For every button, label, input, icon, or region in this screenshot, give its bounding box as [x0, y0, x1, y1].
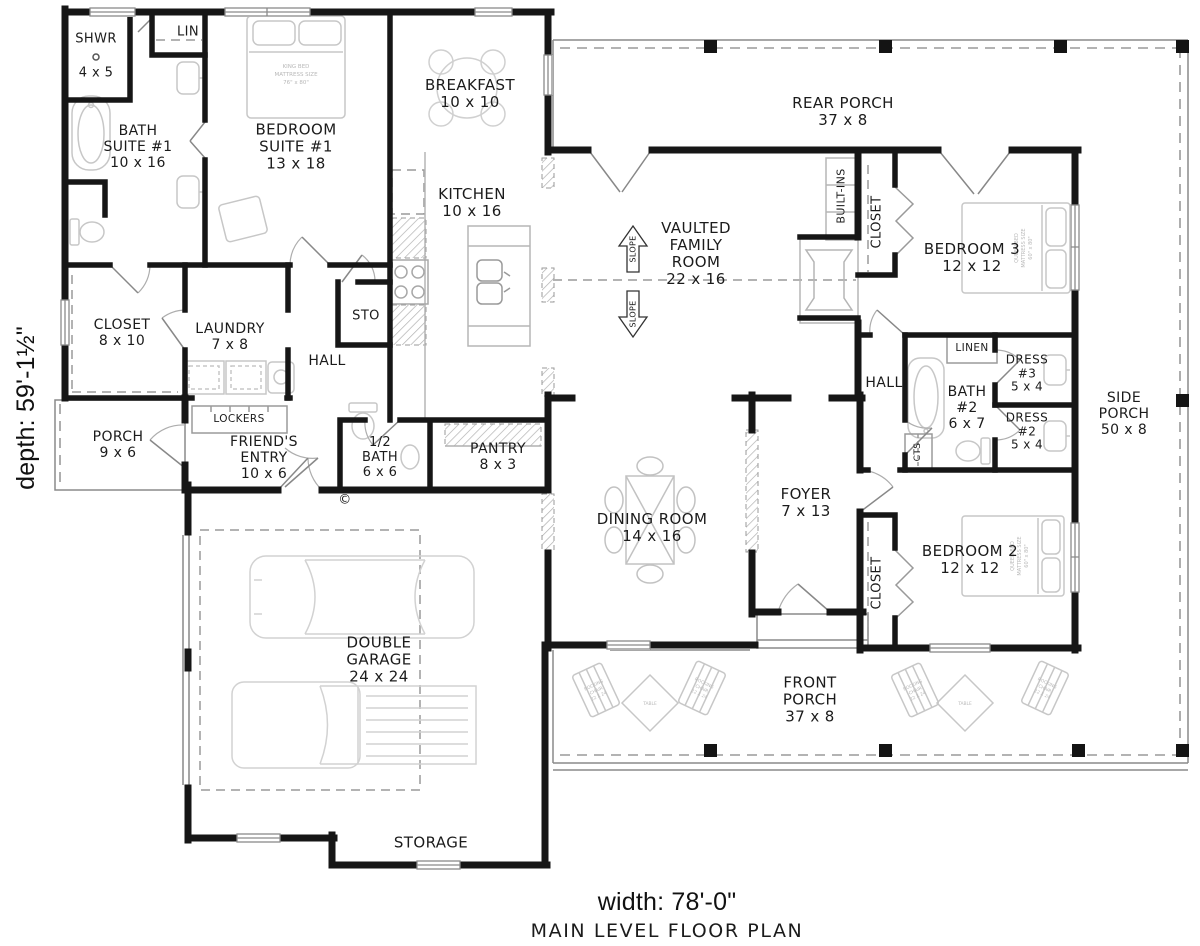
floor-plan-sheet: KING BED MATTRESS SIZE 76" x 80" QUEEN B…: [0, 0, 1200, 946]
room-label-side-porch: SIDEPORCH50 x 8: [1099, 391, 1150, 439]
width-dimension: width: 78'-0": [598, 888, 737, 917]
room-label-dress-2: DRESS#25 x 4: [1006, 411, 1048, 452]
vanity-sinks-icon: [177, 62, 203, 208]
room-label-kitchen: KITCHEN10 x 16: [438, 186, 506, 220]
exterior-walls: [65, 9, 1078, 865]
truck-icon: [232, 682, 476, 768]
room-label-lockers: LOCKERS: [213, 414, 264, 426]
room-label-closet-8x10: CLOSET8 x 10: [94, 318, 151, 350]
floor-plan-drawing: KING BED MATTRESS SIZE 76" x 80" QUEEN B…: [0, 0, 1200, 946]
room-dims-shwr: 4 x 5: [79, 67, 114, 82]
room-label-front-porch: FRONTPORCH37 x 8: [783, 674, 837, 725]
room-label-bath-suite-1: BATHSUITE #110 x 16: [104, 124, 173, 172]
room-label-family-room: VAULTEDFAMILYROOM22 x 16: [661, 220, 731, 288]
room-label-shwr: SHWR: [75, 33, 117, 48]
room-label-linen: LINEN: [955, 343, 988, 355]
room-label-laundry: LAUNDRY7 x 8: [195, 322, 264, 354]
room-label-dining-room: DINING ROOM14 x 16: [597, 511, 708, 545]
room-label-foyer: FOYER7 x 13: [781, 486, 832, 520]
svg-text:60" x 80": 60" x 80": [1028, 236, 1034, 259]
room-label-sto: STO: [352, 310, 380, 325]
slope-label: SLOPE: [628, 236, 637, 263]
room-label-friends-entry: FRIEND'SENTRY10 x 6: [230, 435, 298, 483]
bedroom-chair-icon: [218, 195, 268, 242]
room-label-bedroom-suite-1: BEDROOMSUITE #113 x 18: [255, 121, 336, 172]
room-label-bedroom-3: BEDROOM 312 x 12: [924, 241, 1020, 275]
room-label-hall-right: HALL: [865, 376, 902, 392]
room-label-breakfast: BREAKFAST10 x 10: [425, 77, 515, 111]
room-label-lin: LIN: [177, 26, 199, 41]
svg-text:MATTRESS SIZE: MATTRESS SIZE: [274, 72, 318, 78]
room-label-built-ins: BUILT-INS: [836, 168, 849, 223]
depth-dimension: depth: 59'-1½": [12, 326, 41, 490]
room-label-porch-9x6: PORCH9 x 6: [93, 430, 144, 462]
svg-text:KING BED: KING BED: [283, 64, 310, 70]
car-icon: [250, 556, 474, 638]
room-label-cts: CTS: [913, 443, 923, 462]
room-label-rear-porch: REAR PORCH37 x 8: [792, 95, 894, 129]
closet-bifold-icon: [895, 550, 913, 618]
page-title: MAIN LEVEL FLOOR PLAN: [531, 921, 804, 943]
stove-icon: [391, 260, 428, 304]
furniture: [70, 16, 1070, 768]
room-label-bedroom-2: BEDROOM 212 x 12: [922, 543, 1018, 577]
room-label-hall-left: HALL: [308, 354, 345, 370]
svg-text:TABLE: TABLE: [957, 701, 972, 707]
room-label-closet-bed2: CLOSET: [871, 557, 886, 610]
room-label-half-bath: 1/2BATH6 x 6: [362, 436, 398, 480]
master-toilet-icon: [70, 219, 104, 245]
svg-text:MATTRESS SIZE: MATTRESS SIZE: [1021, 228, 1027, 267]
shower-drain-icon: [93, 54, 99, 60]
svg-text:60" x 80": 60" x 80": [1024, 544, 1030, 567]
kitchen-sink-icon: [477, 260, 510, 304]
svg-text:TABLE: TABLE: [642, 701, 657, 707]
room-label-bath-2: BATH#26 x 7: [948, 385, 987, 433]
slope-label: SLOPE: [628, 301, 637, 328]
washer-dryer-icon: [184, 361, 294, 394]
room-label-double-garage: DOUBLEGARAGE24 x 24: [346, 634, 411, 685]
room-label-pantry: PANTRY8 x 3: [470, 442, 526, 474]
svg-text:76" x 80": 76" x 80": [283, 80, 309, 86]
copyright-symbol: ©: [338, 494, 351, 509]
bath2-toilet-icon: [956, 438, 990, 464]
room-label-storage: STORAGE: [394, 834, 468, 851]
room-label-dress-3: DRESS#35 x 4: [1006, 353, 1048, 394]
room-label-closet-bed3: CLOSET: [871, 196, 886, 249]
closet-bifold-icon: [895, 187, 913, 255]
